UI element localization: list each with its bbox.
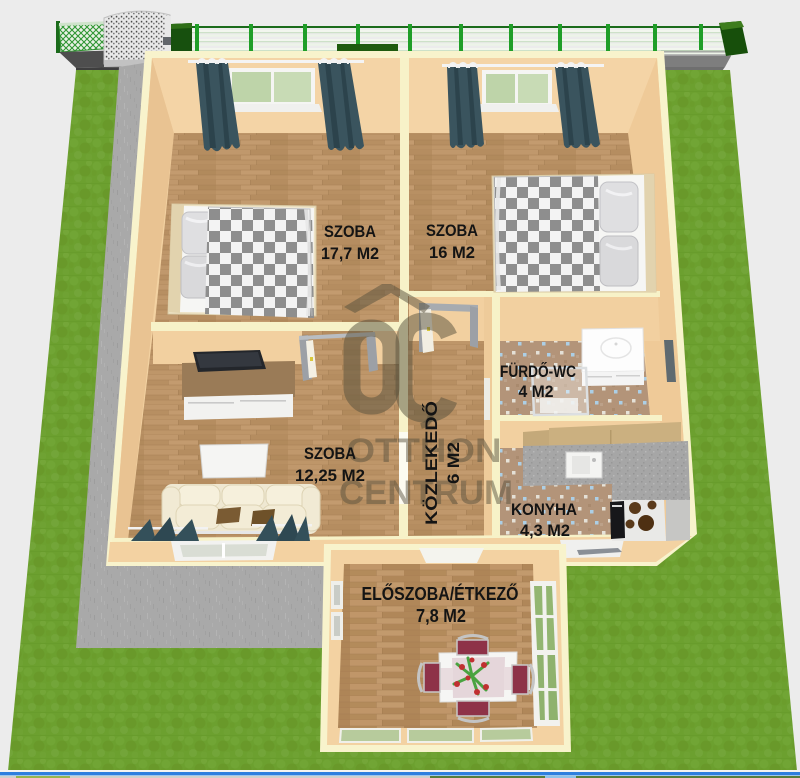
svg-text:SZOBA: SZOBA bbox=[426, 221, 478, 240]
svg-text:17,7 M2: 17,7 M2 bbox=[321, 244, 379, 263]
svg-text:4,3 M2: 4,3 M2 bbox=[520, 521, 570, 540]
svg-text:SZOBA: SZOBA bbox=[324, 222, 376, 241]
svg-text:KÖZLEKEDŐ: KÖZLEKEDŐ bbox=[422, 401, 441, 525]
svg-text:16 M2: 16 M2 bbox=[429, 243, 475, 262]
svg-text:FÜRDŐ-WC: FÜRDŐ-WC bbox=[500, 362, 576, 381]
svg-text:6 M2: 6 M2 bbox=[444, 442, 463, 484]
svg-text:ELŐSZOBA/ÉTKEZŐ: ELŐSZOBA/ÉTKEZŐ bbox=[362, 583, 519, 604]
svg-text:4 M2: 4 M2 bbox=[519, 382, 554, 401]
svg-text:12,25 M2: 12,25 M2 bbox=[295, 466, 365, 485]
svg-text:KONYHA: KONYHA bbox=[511, 500, 577, 519]
svg-text:SZOBA: SZOBA bbox=[304, 444, 356, 463]
svg-text:7,8 M2: 7,8 M2 bbox=[416, 606, 466, 626]
